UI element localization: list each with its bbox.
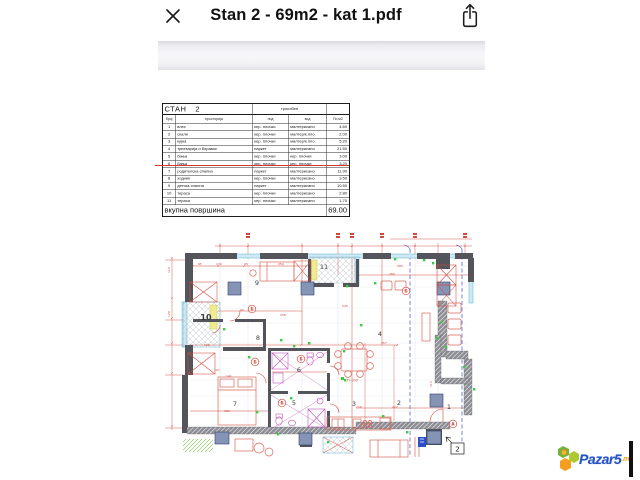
table-total-row: вкупна површина69.00 — [163, 205, 350, 217]
table-row: 8ходниккер. плочкималтерисано3.50 — [163, 175, 350, 182]
table-cell: бања — [176, 153, 253, 160]
watermark: Pazar5.mk — [556, 441, 633, 477]
table-cell: кер. плочки — [289, 160, 327, 167]
watermark-edge-bar — [629, 441, 633, 477]
bathroom-fixtures — [271, 352, 327, 429]
table-cell: вкупна површина — [163, 205, 327, 217]
table-cell: трособен — [253, 104, 327, 115]
green-dot — [256, 411, 258, 413]
pazar5-logo-icon — [557, 444, 579, 474]
table-cell: малтерисано — [289, 168, 327, 175]
dim-label: 120 — [167, 311, 171, 317]
table-cell: кер. плочки — [253, 153, 289, 160]
green-dot — [290, 397, 292, 399]
dim-label: 250 — [278, 262, 284, 266]
table-row: 10терасакер. плочкималтерисано2.80 — [163, 190, 350, 197]
green-dot — [343, 350, 345, 352]
room-label: 10 — [200, 313, 212, 322]
table-cell: скали — [176, 131, 253, 138]
table-row: 7родителска спалнапаркетмалтерисано11.90 — [163, 168, 350, 175]
table-cell: СТАН2 — [163, 104, 253, 115]
table-cell: 3.00 — [327, 153, 350, 160]
circled-letter-marker: Б — [251, 358, 259, 366]
table-cell: 3.20 — [327, 160, 350, 167]
table-cell: малтерисано — [289, 145, 327, 152]
table-cell: 11.90 — [327, 168, 350, 175]
green-dot — [382, 415, 384, 417]
equipment-dot — [341, 377, 344, 380]
dim-label: 126 — [204, 343, 210, 347]
table-cell: детска спална — [176, 182, 253, 189]
table-cell: влез — [176, 123, 253, 130]
table-cell: 69.00 — [327, 205, 350, 217]
green-dot — [436, 337, 438, 339]
header-bar: Stan 2 - 69m2 - kat 1.pdf — [0, 0, 640, 34]
room-label: 4 — [378, 330, 382, 338]
dim-label: 258 — [280, 313, 286, 317]
room-label: 5 — [292, 399, 296, 407]
dim-label: 280 — [389, 272, 395, 276]
green-dot — [344, 379, 346, 381]
table-row: 11терасакер. плочкималтерисано1.70 — [163, 197, 350, 204]
table-cell: 7 — [163, 168, 176, 175]
table-row: 9детска спалнапаркетмалтерисано10.50 — [163, 182, 350, 189]
green-dot — [374, 282, 376, 284]
table-cell: По м2 — [327, 115, 350, 124]
table-cell: малтерисано — [289, 123, 327, 130]
table-cell: кујна — [176, 138, 253, 145]
circled-letter-marker: Б — [297, 355, 305, 363]
share-icon — [459, 2, 481, 29]
room-label: 7 — [233, 400, 237, 408]
document-title: Stan 2 - 69m2 - kat 1.pdf — [0, 6, 612, 25]
table-cell: 10.50 — [327, 182, 350, 189]
table-cell: 2.80 — [327, 190, 350, 197]
table-cell: малтерисано — [289, 197, 327, 204]
dim-label: 95 — [244, 262, 248, 266]
circled-letter-marker: А — [449, 420, 457, 428]
table-cell: 4 — [163, 145, 176, 152]
dim-label: 305 — [397, 264, 403, 268]
table-cell: бања — [176, 160, 253, 167]
table-cell: кер. плочки — [253, 160, 289, 167]
grid-marker-flags — [246, 233, 467, 238]
green-dot — [445, 346, 447, 348]
circled-letter-marker: Б — [278, 399, 286, 407]
dim-label: 107 — [214, 368, 220, 372]
table-cell: 8 — [163, 175, 176, 182]
dim-label: 65 — [198, 262, 202, 266]
table-cell: паркет — [253, 145, 289, 152]
table-cell: тераса — [176, 190, 253, 197]
table-cell — [327, 104, 350, 115]
table-cell: малтерисано — [289, 182, 327, 189]
green-dot — [394, 258, 396, 260]
dim-label: 236 — [356, 405, 362, 409]
dim-label: 363 — [224, 409, 230, 413]
green-dot — [248, 356, 250, 358]
table-row: 5бањакер. плочкикер. плочки3.00 — [163, 153, 350, 160]
dim-label: 457 — [381, 341, 387, 345]
dim-label: 141 — [226, 374, 232, 378]
green-dot — [223, 328, 225, 330]
table-cell: малтерисано — [289, 175, 327, 182]
green-dot — [440, 321, 442, 323]
room-table: СТАН2трособенбројпросторијаподѕидПо м21в… — [162, 103, 350, 217]
table-row: 3кујнакер. плочкималтер/к.пло.5.20 — [163, 138, 350, 145]
table-cell: 5 — [163, 153, 176, 160]
floor-plan: 2 П-100 9101148657321 651309525030528054… — [160, 225, 490, 471]
page-top-edge — [158, 41, 485, 70]
table-cell: паркет — [253, 168, 289, 175]
table-cell: малтер/к.пло. — [289, 131, 327, 138]
room-label: 11 — [320, 263, 328, 271]
green-dot — [406, 431, 408, 433]
room-schedule-table: СТАН2трособенбројпросторијаподѕидПо м21в… — [162, 103, 349, 209]
room-label: 1 — [447, 403, 451, 411]
table-cell: малтер/к.пло. — [289, 138, 327, 145]
green-dot — [308, 342, 310, 344]
pdf-preview-screen: Stan 2 - 69m2 - kat 1.pdf СТАН2трособенб… — [0, 0, 640, 480]
table-header-row: бројпросторијаподѕидПо м2 — [163, 115, 350, 124]
table-row: 6бањакер. плочкикер. плочки3.20 — [163, 160, 350, 167]
green-dot — [346, 285, 348, 287]
green-dot — [327, 441, 329, 443]
green-dot — [473, 388, 475, 390]
table-cell: број — [163, 115, 176, 124]
table-cell: кер. плочки — [289, 153, 327, 160]
room-label: 6 — [297, 366, 301, 374]
yellow-highlight — [311, 260, 317, 280]
table-cell: кер. плочки — [253, 138, 289, 145]
room-label: 9 — [255, 279, 259, 287]
red-strikethrough-line — [155, 165, 349, 166]
table-cell: родителска спална — [176, 168, 253, 175]
table-row: 2скаликер. плочкималтер/к.пло.2.00 — [163, 131, 350, 138]
share-button[interactable] — [459, 2, 481, 29]
table-cell: ѕид — [289, 115, 327, 124]
dim-label: 130 — [216, 262, 222, 266]
table-cell: просторија — [176, 115, 253, 124]
table-cell: 3.50 — [327, 175, 350, 182]
dim-label: 545 — [342, 304, 348, 308]
table-cell: кер. плочки — [253, 197, 289, 204]
watermark-brand: Pazar5 — [579, 451, 621, 467]
table-cell: 3 — [163, 138, 176, 145]
equipment-label: П-100 — [347, 379, 359, 383]
table-cell: 6 — [163, 160, 176, 167]
green-dot — [280, 339, 282, 341]
table-cell: 4.60 — [327, 123, 350, 130]
circled-letter-marker: Б — [248, 305, 256, 313]
dim-label: 90 — [240, 308, 244, 312]
green-dot — [423, 259, 425, 261]
table-cell: тераса — [176, 197, 253, 204]
table-cell: кер. плочки — [253, 131, 289, 138]
table-cell: трпезарија и боравок — [176, 145, 253, 152]
table-cell: кер. плочки — [253, 123, 289, 130]
green-dot — [277, 433, 279, 435]
room-label: 8 — [256, 334, 260, 342]
green-dot — [463, 366, 465, 368]
table-cell: кер. плочки — [253, 190, 289, 197]
green-dot — [432, 262, 434, 264]
table-cell: 1.70 — [327, 197, 350, 204]
table-cell: паркет — [253, 182, 289, 189]
table-cell: 5.20 — [327, 138, 350, 145]
plants — [183, 439, 213, 452]
dim-label: 113 — [429, 381, 433, 387]
floor-plan-area: 2 П-100 9101148657321 651309525030528054… — [160, 225, 490, 471]
svg-text:А: А — [451, 422, 455, 428]
table-row: 4трпезарија и боравокпаркетмалтерисано21… — [163, 145, 350, 152]
table-cell: 21.50 — [327, 145, 350, 152]
table-cell: 2.00 — [327, 131, 350, 138]
table-title-row: СТАН2трособен — [163, 104, 350, 115]
table-cell: 1 — [163, 123, 176, 130]
table-cell: малтерисано — [289, 190, 327, 197]
dim-label: 116 — [167, 267, 171, 273]
table-cell: ходник — [176, 175, 253, 182]
table-cell: кер. плочки — [253, 175, 289, 182]
table-cell: 11 — [163, 197, 176, 204]
dim-label: 222 — [392, 405, 398, 409]
green-dot — [293, 345, 295, 347]
table-cell: 9 — [163, 182, 176, 189]
section-marker-label: 2 — [455, 446, 459, 454]
table-cell: 2 — [163, 131, 176, 138]
table-row: 1влезкер. плочкималтерисано4.60 — [163, 123, 350, 130]
table-cell: под — [253, 115, 289, 124]
circled-letter-marker: Б — [402, 287, 410, 295]
green-dot — [360, 324, 362, 326]
table-cell: 10 — [163, 190, 176, 197]
